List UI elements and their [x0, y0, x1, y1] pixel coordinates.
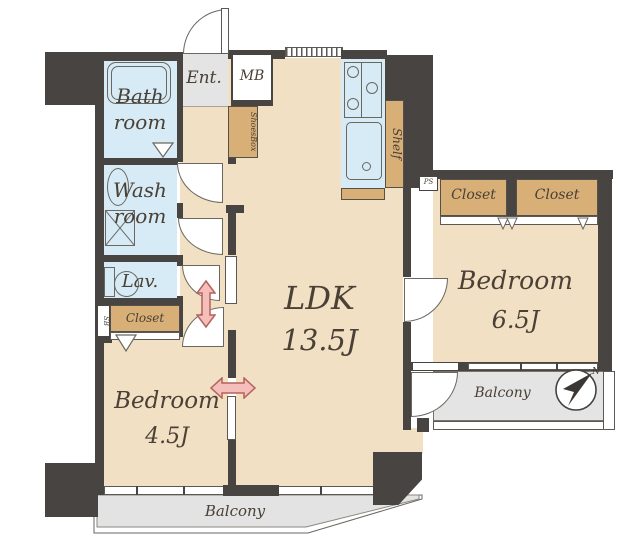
balcony-door-opening	[413, 363, 458, 370]
kitchen-cabinet	[341, 188, 385, 200]
wall-corridor-right-b	[228, 213, 236, 255]
burner-icon	[347, 66, 359, 78]
compass-icon: N	[552, 364, 604, 416]
wall-bedroom65-top	[433, 170, 613, 179]
wall-ldk-bedroom-a	[403, 188, 411, 277]
shelf-label: Shelf	[386, 113, 403, 175]
wall-corridor-right-d	[228, 440, 236, 488]
wall-lav-closet	[103, 298, 178, 305]
shoes-box-label: ShoesBox	[229, 109, 257, 155]
lav-label: Lav.	[103, 273, 177, 291]
stove-divider	[361, 62, 362, 118]
entrance-door-leaf	[221, 8, 229, 54]
balcony-right-outer-band	[433, 421, 615, 430]
window-mullion	[183, 486, 185, 495]
wall-corridor-right-a	[226, 205, 244, 213]
folding-door-mark-icon	[506, 217, 518, 230]
pipe-space-label: PS	[419, 179, 438, 186]
entrance-label: Ent.	[180, 70, 228, 87]
wall-closet-divider	[507, 179, 516, 216]
hall-closet-label: Closet	[110, 312, 180, 324]
wall-wash-lav	[103, 255, 178, 262]
sb-label: SB	[98, 308, 109, 334]
wash-label-1: Wash	[103, 180, 177, 200]
closet-door-track	[440, 216, 598, 225]
balcony-right-label: Balcony	[450, 386, 555, 400]
burner-icon	[366, 82, 378, 94]
wall-corridor-right-stub	[228, 158, 236, 164]
wall-balcony-stub	[417, 418, 429, 432]
wall-bath-wash	[103, 158, 178, 165]
folding-door-mark-icon	[115, 334, 137, 352]
sink-drain-icon	[362, 162, 371, 171]
meter-box-label: MB	[231, 69, 273, 83]
bedroom-65-size-label: 6.5J	[433, 308, 598, 332]
wall-right-upper	[403, 100, 433, 188]
bath-label-2: room	[103, 112, 177, 132]
wall-top-left	[100, 52, 183, 61]
wall-corner-bottomleft	[45, 463, 98, 517]
sliding-arrow-vertical-icon	[196, 280, 216, 328]
wall-bottom-chunk	[223, 485, 279, 496]
window-mullion	[520, 363, 522, 370]
wall-top-right	[341, 50, 387, 59]
burner-icon	[347, 98, 359, 110]
sliding-door-leaf	[227, 396, 236, 440]
ldk-size-label: 13.5J	[236, 326, 403, 355]
bedroom-45-window	[104, 486, 224, 495]
closet-a-label: Closet	[440, 188, 507, 202]
compass-north-label: N	[591, 367, 601, 377]
louver-window	[285, 47, 343, 57]
window-mullion	[320, 486, 322, 495]
window-mullion	[136, 486, 138, 495]
wash-label-2: room	[103, 206, 177, 226]
bath-label-1: Bath	[103, 86, 177, 106]
folding-door-mark-icon	[152, 142, 174, 158]
closet-b-label: Closet	[516, 188, 598, 202]
floor-plan: N Bath room Wash room Lav. Closet SB Ent…	[0, 0, 640, 547]
folding-door-mark-icon	[577, 217, 589, 230]
wall-corridor-left-b	[177, 203, 183, 218]
balcony-right-side-band	[603, 371, 615, 430]
wall-ldk-bedroom-b	[403, 322, 411, 430]
balcony-bottom-label: Balcony	[185, 504, 285, 519]
wall-corridor-right-c	[228, 330, 236, 378]
wall-corner-topleft	[45, 52, 100, 105]
bedroom-65-label: Bedroom	[433, 268, 598, 293]
wall-right-outer	[598, 170, 612, 371]
ldk-window	[277, 486, 376, 495]
sink-icon	[346, 122, 382, 180]
bedroom-45-size-label: 4.5J	[106, 426, 228, 448]
bedroom-45-label: Bedroom	[106, 390, 228, 413]
wall-block-topright	[385, 55, 433, 105]
ldk-label: LDK	[236, 282, 403, 314]
